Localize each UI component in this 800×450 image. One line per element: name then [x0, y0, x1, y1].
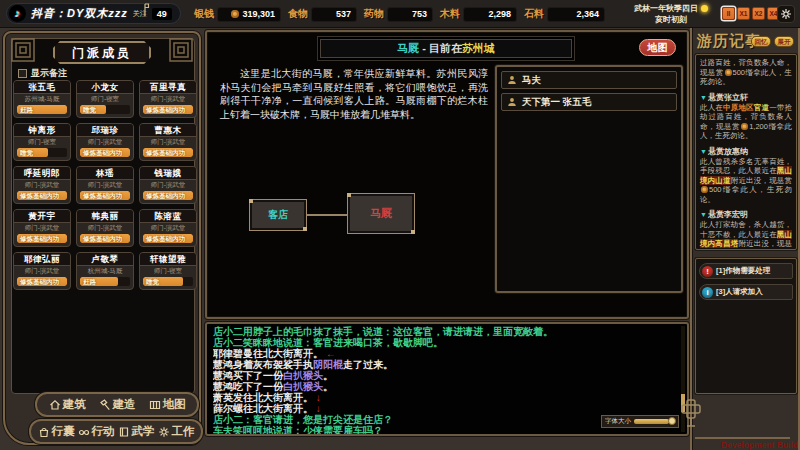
member-name: 小龙女 [77, 81, 133, 94]
resource-label: 药物 [364, 7, 384, 21]
text-segment: 萧英发往北大街离开。 [213, 392, 313, 403]
triangle-icon: ▼ [700, 94, 707, 101]
member-card[interactable]: 耶律弘丽师门-演武堂修炼基础内功 [13, 252, 71, 290]
member-action-bar: 修炼基础内功 [17, 191, 67, 200]
resource-amount: 2,298 [488, 9, 511, 19]
member-action-label: 修炼基础内功 [146, 234, 185, 243]
chat-panel: 店小二用脖子上的毛巾抹了抹手，说道：这位客官，请进请进，里面宽敞着。店小二笑眯眯… [205, 322, 689, 436]
dev-build-label: Development Build [721, 440, 798, 450]
chat-line: 店小二用脖子上的毛巾抹了抹手，说道：这位客官，请进请进，里面宽敞着。 [213, 326, 675, 337]
book-icon [118, 426, 130, 438]
speed-button-x2[interactable]: X2 [752, 7, 765, 20]
chat-line: 慧鸿身着灰布袈裟手执阴阳棍走了过来。 [213, 359, 675, 370]
text-segment: 慧鸿身着灰布袈裟手执 [213, 359, 313, 370]
resource-label: 木料 [440, 7, 460, 21]
speed-button-x1[interactable]: X1 [737, 7, 750, 20]
text-segment: 此人在 [700, 103, 723, 112]
game-date: 武林一年秋季四日 亥时初刻 [634, 3, 708, 25]
resource-label: 食物 [288, 7, 308, 21]
journal-entry-body: 此人打家劫舍，杀人越货，十恶不赦，此人最近在黑山境内高昌塔附近出没，现悬赏800… [700, 220, 792, 250]
text-segment: 。 [323, 370, 333, 381]
text-segment: ↓ [313, 403, 321, 414]
journal-entry-body: 此人曾残杀多名无辜百姓，手段残忍，此人最近在黑山境内山道附近出没，现悬赏500缗… [700, 157, 792, 205]
knot-ornament [679, 396, 705, 430]
member-action-label: 修炼基础内功 [20, 234, 59, 243]
member-card[interactable]: 小龙女师门-寝室睡觉 [76, 80, 134, 118]
member-name: 陈溶蓝 [140, 210, 196, 223]
resource-amount: 537 [336, 9, 351, 19]
menu-item-建造[interactable]: 建造 [99, 397, 136, 412]
member-action-bar: 修炼基础内功 [17, 234, 67, 243]
map-icon [149, 399, 161, 411]
font-size-slider[interactable] [634, 419, 675, 424]
journal-panel: 游历记事 回忆 展开 过路百姓，背负数条人命，现悬赏500缗拿此人，生死勿论。▼… [690, 28, 800, 450]
npc-row[interactable]: 天下第一 张五毛 [501, 93, 677, 111]
journal-recall-button[interactable]: 回忆 [751, 36, 771, 47]
frame-divider [695, 437, 790, 439]
chat-line: 店小二笑眯眯地说道：客官进来喝口茶，歇歇脚吧。 [213, 337, 675, 348]
member-action-label: 睡觉 [83, 105, 96, 114]
member-action-bar: 修炼基础内功 [80, 191, 130, 200]
member-card[interactable]: 卢敬琴杭州城-马厩赶路 [76, 252, 134, 290]
member-action-label: 睡觉 [20, 148, 33, 157]
location-name: 马厩 [397, 42, 419, 54]
member-location: 师门-寝室 [77, 94, 133, 104]
member-grid: 张五毛苏州城-马厩赶路小龙女师门-寝室睡觉百里寻真师门-演武堂修炼基础内功钟离形… [13, 80, 197, 290]
member-action-label: 修炼基础内功 [83, 191, 122, 200]
member-action-bar: 修炼基础内功 [143, 105, 193, 114]
journal-entry-title: 悬赏李宏明 [708, 210, 748, 219]
menu-item-label: 工作 [172, 424, 195, 439]
member-name: 韩典丽 [77, 210, 133, 223]
game-screen: ♪ 抖音：DY双木zzz 关注 49 银钱319,301食物537药物753木料… [0, 0, 800, 450]
location-panel: 马厩 - 目前在苏州城 地图 这里是北大街的马厩，常年供应新鲜草料。苏州民风淳朴… [205, 30, 689, 319]
resource-list: 银钱319,301食物537药物753木料2,298石料2,364 [194, 0, 605, 28]
journal-entry: 过路百姓，背负数条人命，现悬赏500缗拿此人，生死勿论。 [700, 58, 792, 87]
notification-text: [3]人请求加入 [716, 287, 763, 297]
journal-entry-body: 过路百姓，背负数条人命，现悬赏500缗拿此人，生死勿论。 [700, 58, 792, 87]
member-name: 钟离形 [14, 124, 70, 137]
member-action-bar: 修炼基础内功 [143, 148, 193, 157]
menu-item-label: 建筑 [63, 397, 86, 412]
triangle-icon: ▼ [700, 211, 707, 218]
member-action-label: 赶路 [83, 277, 96, 286]
notification-text: [1]作物需要处理 [716, 266, 770, 276]
member-action-bar: 修炼基础内功 [143, 191, 193, 200]
journal-entry-header: ▼悬赏放惠纳 [700, 146, 792, 157]
member-location: 师门-演武堂 [140, 223, 196, 233]
speed-button-ii[interactable]: II [722, 7, 735, 20]
triangle-icon: ▼ [700, 148, 707, 155]
chat-line: 薛尔螺往北大街离开。 ↓ [213, 403, 675, 414]
npc-list-panel: 马夫天下第一 张五毛 [495, 65, 683, 293]
member-action-label: 修炼基础内功 [146, 105, 185, 114]
font-size-label: 字体大小 [605, 417, 631, 426]
member-name: 林瑶 [77, 167, 133, 180]
text-segment: 白扒猴头 [283, 381, 323, 392]
notification-panel: ![1]作物需要处理i[3]人请求加入 [695, 258, 797, 394]
resource-value: 2,364 [547, 7, 605, 22]
alert-icon: ! [702, 266, 713, 277]
npc-row[interactable]: 马夫 [501, 71, 677, 89]
corner-ornament-right [169, 38, 193, 62]
member-card[interactable]: 张五毛苏州城-马厩赶路 [13, 80, 71, 118]
resource-amount: 2,364 [576, 9, 599, 19]
show-notes-checkbox[interactable] [18, 69, 27, 78]
sect-panel: 门派成员 显示备注 张五毛苏州城-马厩赶路小龙女师门-寝室睡觉百里寻真师门-演武… [3, 31, 201, 445]
member-action-label: 睡觉 [146, 277, 159, 286]
menu-item-工作[interactable]: 工作 [158, 424, 195, 439]
resource-amount: 753 [412, 9, 427, 19]
text-segment: 走了过来。 [343, 359, 393, 370]
text-segment: 白扒猴头 [283, 370, 323, 381]
build-menu-row: 建筑建造地图 [35, 392, 199, 417]
member-location: 师门-演武堂 [14, 223, 70, 233]
journal-expand-button[interactable]: 展开 [774, 36, 794, 47]
member-name: 曹惠木 [140, 124, 196, 137]
member-location: 师门-演武堂 [14, 180, 70, 190]
member-location: 师门-演武堂 [14, 266, 70, 276]
coin-icon [725, 69, 732, 76]
notification-row[interactable]: i[3]人请求加入 [699, 284, 793, 300]
menu-item-地图[interactable]: 地图 [149, 397, 186, 412]
eyes-icon [78, 426, 90, 438]
text-segment: ↓ [313, 392, 321, 403]
coin-icon [741, 123, 748, 130]
text-segment: 官道 [754, 103, 769, 112]
text-segment: 店小二：客官请进，您是打尖还是住店？ [213, 414, 393, 425]
node-connector [307, 214, 347, 216]
member-location: 师门-演武堂 [77, 137, 133, 147]
member-card[interactable]: 韩典丽师门-演武堂修炼基础内功 [76, 209, 134, 247]
resource-item: 银钱319,301 [194, 7, 281, 22]
member-name: 邱瑞珍 [77, 124, 133, 137]
resource-value: 537 [311, 7, 357, 22]
location-city: 苏州城 [462, 42, 495, 54]
font-size-slider-knob[interactable] [668, 417, 676, 425]
menu-item-label: 行囊 [52, 424, 75, 439]
person-icon [507, 75, 517, 85]
resource-item: 木料2,298 [440, 7, 517, 22]
coin-icon [701, 186, 708, 193]
info-icon: i [702, 287, 713, 298]
member-name: 张五毛 [14, 81, 70, 94]
member-action-bar: 睡觉 [143, 277, 193, 286]
resource-value: 319,301 [217, 7, 281, 22]
member-name: 轩辕望雅 [140, 253, 196, 266]
resource-item: 药物753 [364, 7, 433, 22]
member-name: 卢敬琴 [77, 253, 133, 266]
journal-entry-title: 悬赏张立轩 [708, 93, 748, 102]
member-action-label: 修炼基础内功 [83, 148, 122, 157]
location-node-stable[interactable]: 马厩 [347, 193, 415, 234]
location-description: 这里是北大街的马厩，常年供应新鲜草料。苏州民风淳朴马夫们会把马牵到马厩好生照看，… [220, 67, 488, 121]
time-text: 亥时初刻 [634, 14, 708, 25]
menu-item-武学[interactable]: 武学 [118, 424, 155, 439]
npc-label: 马夫 [522, 74, 541, 87]
text-segment: 慧鸿吃下了一份 [213, 381, 283, 392]
journal-entry-header: ▼悬赏李宏明 [700, 209, 792, 220]
member-action-bar: 睡觉 [17, 148, 67, 157]
text-segment: 店小二用脖子上的毛巾抹了抹手，说道：这位客官，请进请进，里面宽敞着。 [213, 326, 553, 337]
member-name: 钱瑞娥 [140, 167, 196, 180]
text-segment: 800缗拿此人，生死勿论。 [700, 249, 792, 251]
journal-entry-title: 悬赏放惠纳 [708, 147, 748, 156]
show-notes-label: 显示备注 [31, 67, 67, 80]
member-action-label: 修炼基础内功 [146, 191, 185, 200]
coin-icon [709, 250, 716, 251]
member-location: 师门-演武堂 [140, 94, 196, 104]
member-name: 耶律弘丽 [14, 253, 70, 266]
text-segment: 车夫笑呵呵地说道：少侠需要雇车吗？ [213, 425, 383, 436]
chat-line: 慧鸿吃下了一份白扒猴头。 [213, 381, 675, 392]
sun-icon [701, 5, 708, 12]
journal-entry: ▼悬赏放惠纳此人曾残杀多名无辜百姓，手段残忍，此人最近在黑山境内山道附近出没，现… [700, 146, 792, 205]
text-segment: 店小二笑眯眯地说道：客官进来喝口茶，歇歇脚吧。 [213, 337, 443, 348]
member-card[interactable]: 黄开宇师门-演武堂修炼基础内功 [13, 209, 71, 247]
menu-item-建筑[interactable]: 建筑 [49, 397, 86, 412]
text-segment: 阴阳棍 [313, 359, 343, 370]
member-name: 黄开宇 [14, 210, 70, 223]
show-notes-row: 显示备注 [18, 67, 67, 80]
gear-icon [780, 8, 792, 20]
journal-entry-body: 此人在中原地区官道一带抢劫过路百姓，背负数条人命，现悬赏1,200缗拿此人，生死… [700, 103, 792, 141]
member-card[interactable]: 钟离形师门-寝室睡觉 [13, 123, 71, 161]
member-action-bar: 修炼基础内功 [17, 277, 67, 286]
top-resource-bar: ♪ 抖音：DY双木zzz 关注 49 银钱319,301食物537药物753木料… [0, 0, 800, 28]
text-segment: 慧鸿买下了一份 [213, 370, 283, 381]
map-button[interactable]: 地图 [639, 39, 676, 56]
journal-entry: ▼悬赏张立轩此人在中原地区官道一带抢劫过路百姓，背负数条人命，现悬赏1,200缗… [700, 92, 792, 141]
person-icon [507, 97, 517, 107]
member-card[interactable]: 轩辕望雅师门-寝室睡觉 [139, 252, 197, 290]
sect-panel-title: 门派成员 [53, 41, 151, 64]
member-action-label: 赶路 [20, 105, 33, 114]
menu-item-label: 地图 [163, 397, 186, 412]
journal-buttons: 回忆 展开 [751, 36, 794, 47]
hammer-icon [99, 399, 111, 411]
marker-icon [140, 2, 150, 18]
text-segment: 。 [323, 381, 333, 392]
stream-channel-name: 抖音：DY双木zzz [31, 6, 128, 21]
menu-item-label: 行动 [92, 424, 115, 439]
font-size-slider-fill [634, 419, 669, 424]
menu-item-行动[interactable]: 行动 [78, 424, 115, 439]
journal-entries[interactable]: 过路百姓，背负数条人命，现悬赏500缗拿此人，生死勿论。▼悬赏张立轩此人在中原地… [695, 54, 797, 250]
text-segment: 中原地区 [723, 103, 754, 112]
text-segment: 附近出没，现悬赏 [731, 176, 792, 185]
member-location: 师门-演武堂 [77, 223, 133, 233]
member-location: 师门-寝室 [140, 266, 196, 276]
location-title: 马厩 - 目前在苏州城 [320, 39, 572, 58]
member-card[interactable]: 钱瑞娥师门-演武堂修炼基础内功 [139, 166, 197, 204]
member-action-label: 修炼基础内功 [20, 277, 59, 286]
member-location: 杭州城-马厩 [77, 266, 133, 276]
member-action-label: 修炼基础内功 [83, 234, 122, 243]
resource-label: 银钱 [194, 7, 214, 21]
member-card[interactable]: 呼延明郎师门-演武堂修炼基础内功 [13, 166, 71, 204]
member-action-bar: 修炼基础内功 [80, 234, 130, 243]
chat-line: 耶律碧曼往北大街离开。 ← [213, 348, 675, 359]
resource-amount: 319,301 [242, 9, 275, 19]
resource-label: 石料 [524, 7, 544, 21]
location-title-prefix: 目前在 [429, 42, 462, 54]
member-card[interactable]: 百里寻真师门-演武堂修炼基础内功 [139, 80, 197, 118]
corner-ornament-left [11, 38, 35, 62]
font-size-control: 字体大小 [601, 415, 679, 428]
npc-label: 天下第一 张五毛 [522, 96, 591, 109]
member-card[interactable]: 邱瑞珍师门-演武堂修炼基础内功 [76, 123, 134, 161]
member-action-bar: 修炼基础内功 [143, 234, 193, 243]
member-location: 师门-寝室 [14, 137, 70, 147]
action-menu-row: 行囊行动武学工作 [29, 419, 203, 444]
menu-item-label: 建造 [113, 397, 136, 412]
member-name: 呼延明郎 [14, 167, 70, 180]
member-card[interactable]: 曹惠木师门-演武堂修炼基础内功 [139, 123, 197, 161]
member-location: 师门-演武堂 [77, 180, 133, 190]
notification-row[interactable]: ![1]作物需要处理 [699, 263, 793, 279]
member-action-bar: 赶路 [17, 105, 67, 114]
resource-item: 石料2,364 [524, 7, 605, 22]
text-segment: 耶律碧曼往北大街离开。 [213, 348, 323, 359]
member-location: 师门-演武堂 [140, 137, 196, 147]
resource-value: 753 [387, 7, 433, 22]
chat-line: 慧鸿买下了一份白扒猴头。 [213, 370, 675, 381]
follow-count: 49 [152, 8, 172, 20]
menu-item-行囊[interactable]: 行囊 [38, 424, 75, 439]
member-action-bar: 赶路 [80, 277, 130, 286]
resource-item: 食物537 [288, 7, 357, 22]
gear-icon [158, 426, 170, 438]
bag-icon [38, 426, 50, 438]
member-card[interactable]: 陈溶蓝师门-演武堂修炼基础内功 [139, 209, 197, 247]
member-name: 百里寻真 [140, 81, 196, 94]
journal-entry-header: ▼悬赏张立轩 [700, 92, 792, 103]
member-action-bar: 修炼基础内功 [80, 148, 130, 157]
text-segment: 薛尔螺往北大街离开。 [213, 403, 313, 414]
member-action-bar: 睡觉 [80, 105, 130, 114]
coin-icon [231, 10, 239, 18]
journal-entry: ▼悬赏李宏明此人打家劫舍，杀人越货，十恶不赦，此人最近在黑山境内高昌塔附近出没，… [700, 209, 792, 250]
settings-button[interactable] [777, 5, 795, 23]
text-segment: 500缗拿此人，生死勿论。 [700, 185, 792, 204]
member-action-label: 修炼基础内功 [146, 148, 185, 157]
member-location: 师门-演武堂 [140, 180, 196, 190]
member-action-label: 修炼基础内功 [20, 191, 59, 200]
chat-line: 萧英发往北大街离开。 ↓ [213, 392, 675, 403]
tiktok-icon: ♪ [9, 5, 26, 22]
member-location: 苏州城-马厩 [14, 94, 70, 104]
house-icon [49, 399, 61, 411]
stream-overlay: ♪ 抖音：DY双木zzz 关注 49 [6, 3, 181, 24]
location-node-inn[interactable]: 客店 [249, 199, 307, 231]
menu-item-label: 武学 [132, 424, 155, 439]
date-text: 武林一年秋季四日 [634, 4, 698, 13]
location-title-sep: - [419, 42, 429, 54]
text-segment: ← [323, 348, 336, 359]
member-card[interactable]: 林瑶师门-演武堂修炼基础内功 [76, 166, 134, 204]
resource-value: 2,298 [463, 7, 517, 22]
